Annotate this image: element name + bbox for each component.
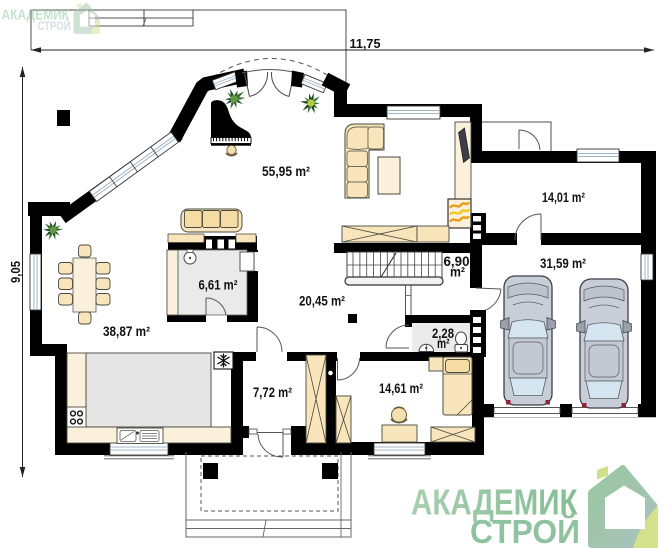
svg-text:31,59 m²: 31,59 m² [540,256,586,271]
svg-text:m²: m² [437,336,450,351]
svg-text:14,01 m²: 14,01 m² [542,190,585,205]
svg-text:6,61 m²: 6,61 m² [199,278,238,293]
svg-text:9,05: 9,05 [9,261,23,283]
svg-text:11,75: 11,75 [350,37,381,51]
svg-text:14,61 m²: 14,61 m² [379,381,423,396]
svg-text:55,95 m²: 55,95 m² [262,164,310,179]
svg-text:20,45 m²: 20,45 m² [299,294,345,309]
svg-text:СТРОЙ: СТРОЙ [470,512,580,548]
svg-text:СТРОЙ: СТРОЙ [38,18,71,33]
svg-text:7,72 m²: 7,72 m² [253,385,292,400]
svg-text:m²: m² [450,265,465,280]
svg-text:38,87 m²: 38,87 m² [103,324,150,339]
